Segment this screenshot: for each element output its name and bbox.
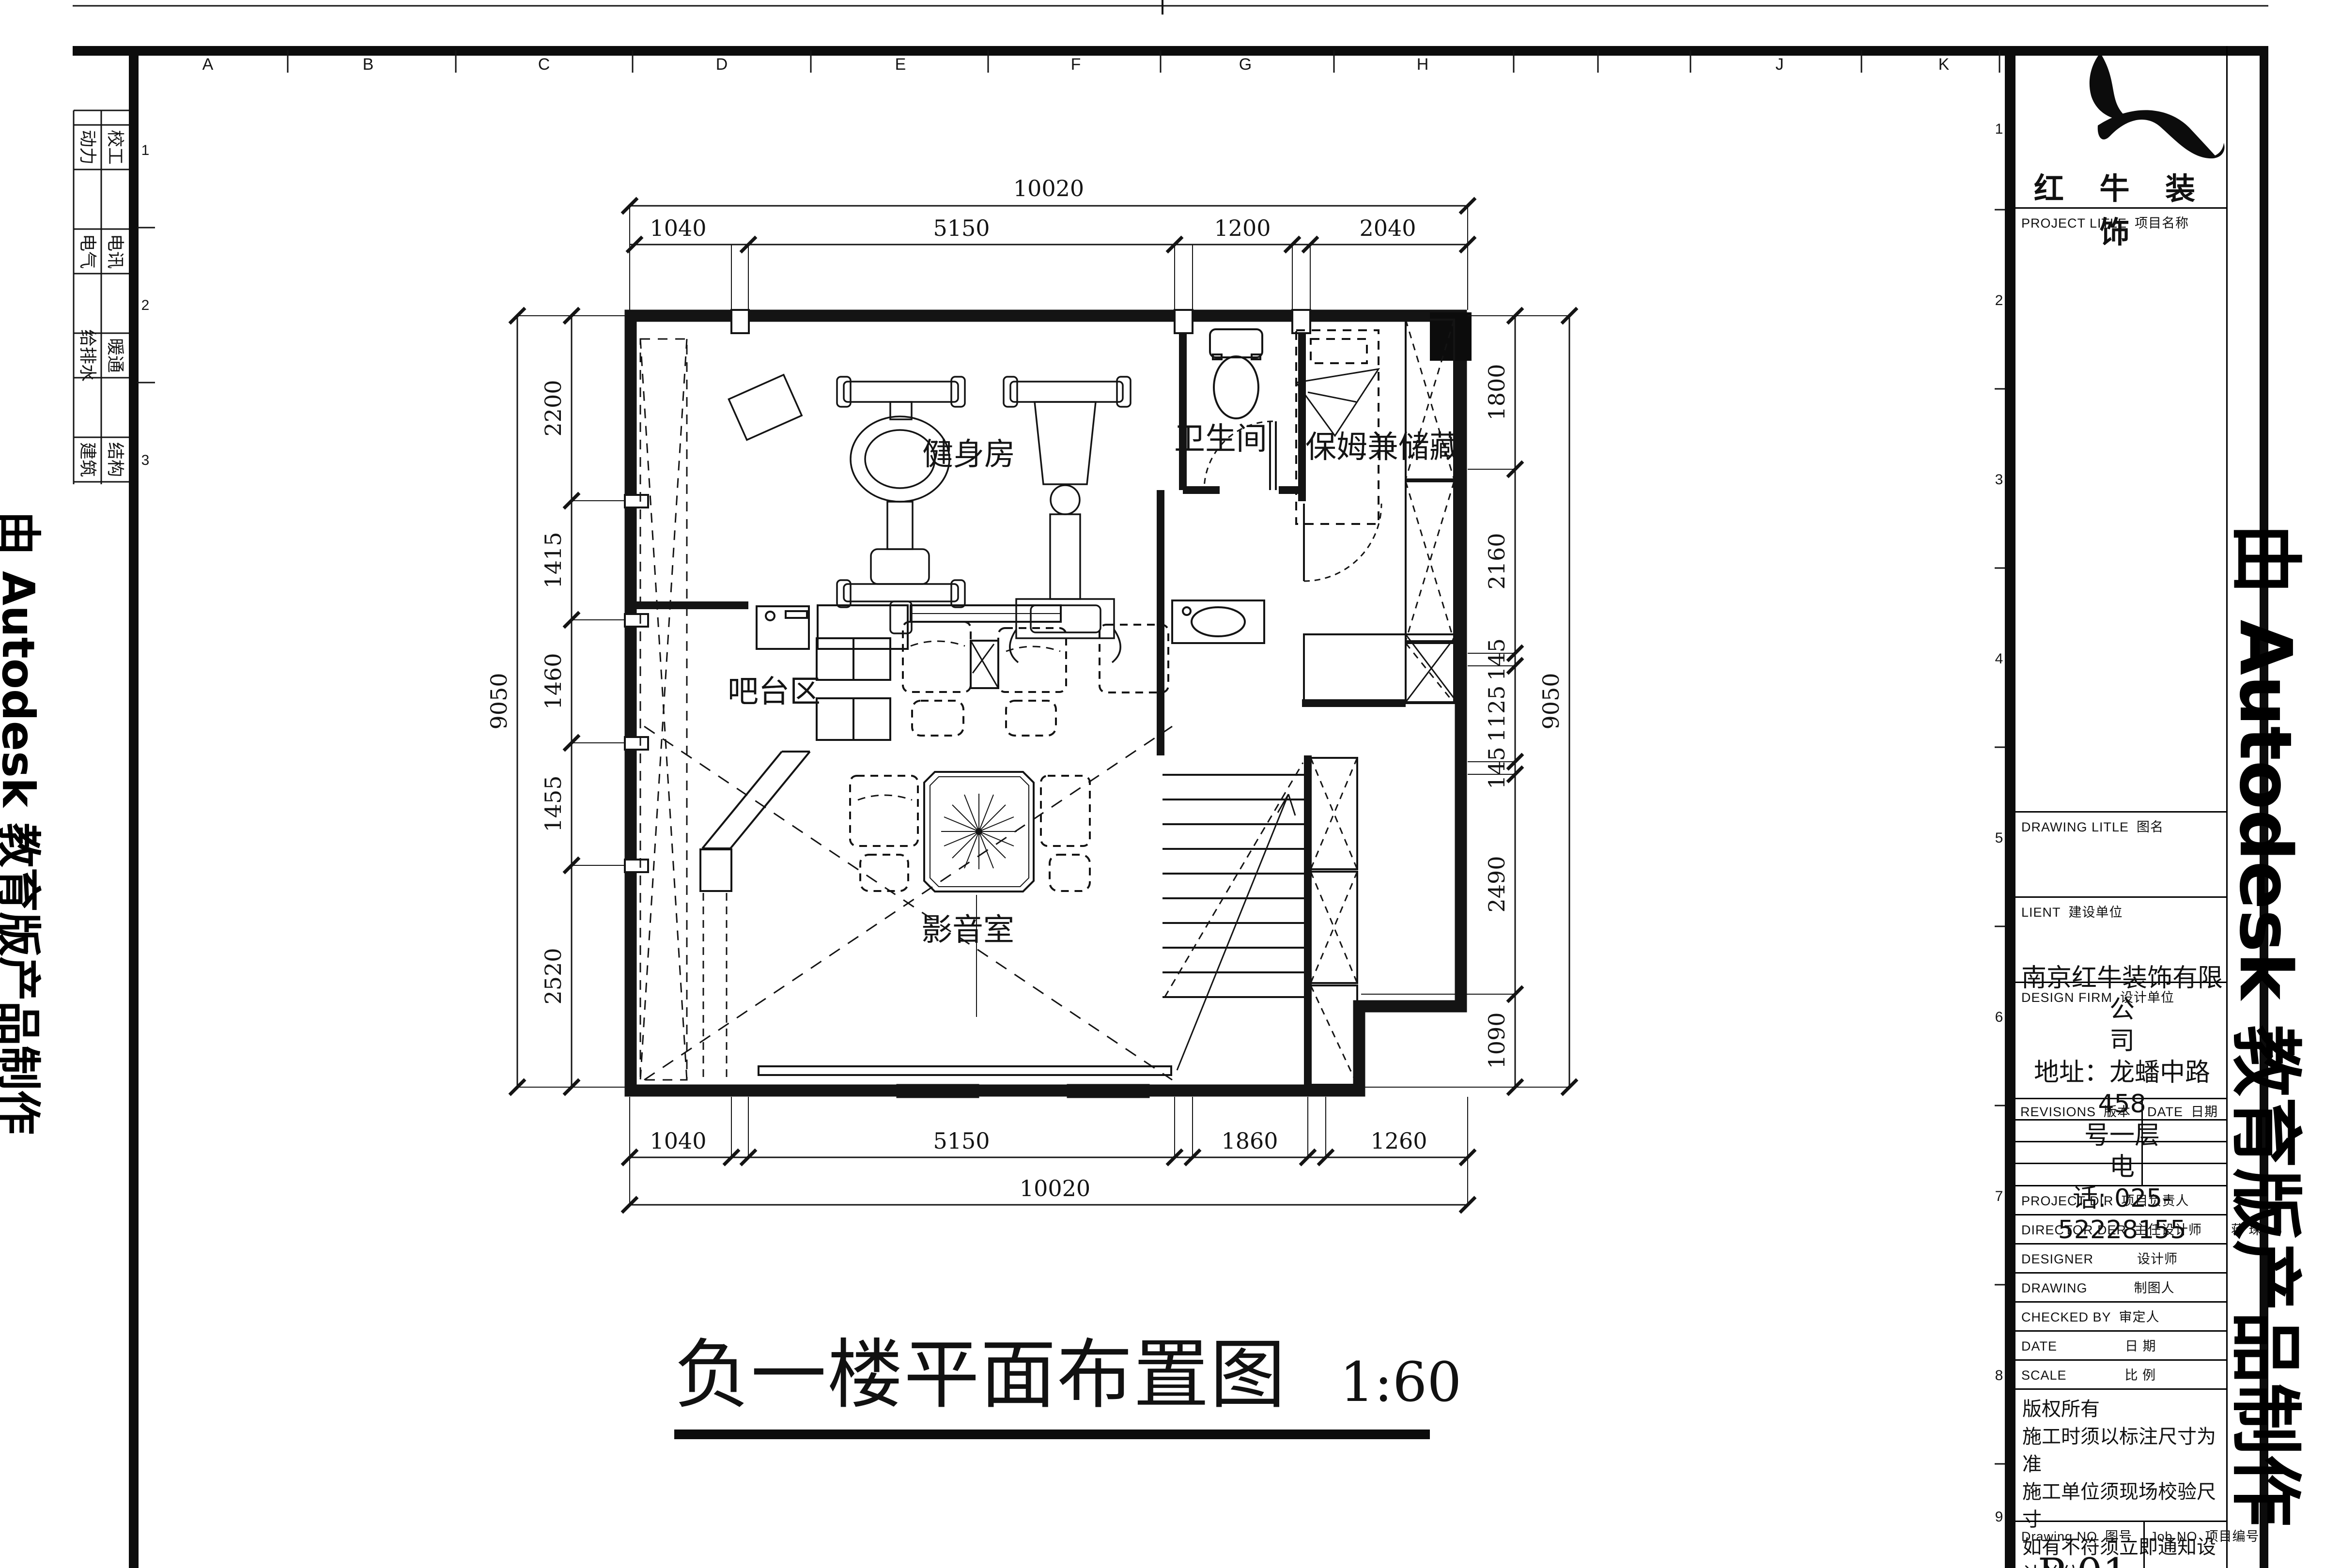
field-label-zh: 制图人 [2134,1281,2175,1295]
field-label-zh: 项目名称 [2135,216,2189,231]
field-drawing: DRAWING制图人 [2015,1272,2226,1301]
room-label-nanny: 保姆兼储藏 [1305,430,1460,465]
flower-centerpiece [941,794,1017,869]
field-label-zh: 审定人 [2119,1310,2160,1324]
field-label-zh: 比 例 [2125,1368,2156,1383]
field-label-zh: 图名 [2137,820,2164,834]
column-letter: B [363,55,374,74]
drawing-title-scale: 1:60 [1340,1351,1462,1414]
logo-cell: 红 牛 装 饰 [2015,46,2226,207]
drawing-title-text: 负一楼平面布置图 [674,1313,1286,1423]
column-letter: J [1776,55,1784,74]
dim-value: 1040 [650,215,706,241]
field-label-en: CHECKED BY [2021,1310,2111,1324]
discipline-label: 暖通 [105,338,125,373]
column-letter: F [1071,55,1081,74]
dim-value: 10020 [1013,175,1084,201]
toilet [1210,329,1262,418]
discipline-label: 电气 [77,234,97,269]
column-letter: D [716,55,728,74]
understair-closet [1311,758,1357,1085]
dim-value: 1455 [540,775,566,832]
row-number: 6 [1995,1009,2003,1025]
dim-value: 2040 [1359,215,1416,241]
company-line: 司 [2011,1026,2233,1057]
field-label-en: LIENT [2021,905,2061,920]
dim-value: 1860 [1221,1128,1278,1154]
field-label-en: PROJECT LITLE [2021,216,2127,231]
field-label-zh: 建设单位 [2069,905,2123,920]
ceiling-projection [644,726,1172,1080]
drawing-no-divider [2143,1521,2145,1568]
dim-value: 9050 [486,673,512,729]
dim-value: 5150 [933,215,990,241]
dim-value: 145 [1484,747,1510,789]
discipline-label: 动力 [77,130,97,165]
row-number: 4 [1995,651,2003,667]
dim-value: 1040 [650,1128,706,1154]
field-drawing-no: Drawing NO图号 P-01 Job NO项目编号 [2015,1521,2226,1568]
stairs [1162,763,1306,1070]
glass-tea-table [971,641,998,688]
rednull-bull-logo [2015,48,2226,159]
dim-bottom-labels: 1040 5150 1860 1260 10020 [650,1128,1427,1201]
gym-machine-right [1004,377,1131,662]
dim-value: 10020 [1020,1175,1090,1201]
row-number: 3 [1995,472,2003,488]
company-line: 电 [2011,1152,2233,1183]
field-checked: CHECKED BY审定人 [2015,1301,2226,1330]
dim-value: 5150 [933,1128,990,1154]
washbasin [1172,600,1264,643]
field-label-zh: 日 期 [2125,1339,2156,1353]
dim-top [622,198,1475,310]
row-number: 1 [141,142,150,158]
drawing-number: P-01 [2038,1550,2220,1568]
field-label-en: Drawing NO [2021,1529,2097,1544]
column-letter: H [1417,55,1429,74]
company-line: 号一层 [2011,1120,2233,1152]
column-letter: K [1938,55,1950,74]
center-table [924,772,1034,892]
exercise-mat [728,375,802,440]
bed [1296,330,1379,524]
field-scale: SCALE比 例 [2015,1359,2226,1388]
row-number: 9 [1995,1509,2003,1525]
dim-value: 2520 [540,948,566,1004]
row-number: 8 [1995,1368,2003,1384]
row-number: 3 [141,452,150,468]
tv-console [911,605,1061,622]
field-label-en: Job NO [2150,1529,2198,1544]
projector-screen [759,1066,1171,1075]
discipline-label: 电讯 [105,234,125,269]
dim-value: 1460 [540,653,566,709]
wardrobe [1406,320,1454,703]
field-drawing-title: DRAWING LITLE图名 [2015,811,2226,896]
row-ruler-left-numbers: 1 2 3 [141,142,150,468]
field-designer: DESIGNER设计师 [2015,1243,2226,1272]
row-number: 2 [141,297,150,313]
company-line: 地址：龙蟠中路458 [2011,1057,2233,1120]
dim-value: 145 [1484,638,1510,681]
dim-value: 2160 [1484,533,1510,589]
bar-tables [817,638,890,740]
row-number: 7 [1995,1188,2003,1204]
field-label-en: DRAWING [2021,1281,2088,1295]
room-label-cinema: 影音室 [921,912,1014,948]
dim-value: 1800 [1484,364,1510,420]
dim-top-labels: 10020 1040 5150 1200 2040 [650,175,1416,241]
room-label-gym: 健身房 [922,437,1015,473]
copyright-notes: 版权所有 施工时须以标注尺寸为准 施工单位须现场校验尺寸 如有不符须立即通知设计… [2015,1388,2226,1521]
company-info: 南京红牛装饰有限公 司 地址：龙蟠中路458 号一层 电 话: 025-5222… [2011,963,2233,1246]
bed-fold [1296,369,1379,436]
field-label-en: DESIGNER [2021,1252,2093,1266]
wall-piers [625,310,1310,872]
column-letter: A [202,55,214,74]
dim-value: 1415 [540,532,566,588]
field-label-zh: 项目编号 [2205,1529,2260,1544]
discipline-strip [74,110,129,484]
discipline-label: 建筑 [77,442,97,477]
dim-left [510,308,625,1095]
note-line: 版权所有 [2022,1396,2219,1423]
field-label-en: DATE [2021,1339,2057,1353]
field-date: DATE日 期 [2015,1330,2226,1359]
column-letter: C [538,55,550,74]
autodesk-watermark-left: 由 Autodesk 教育版产品制作 [0,511,54,1135]
field-label-zh: 图号 [2105,1529,2132,1544]
discipline-label: 结构 [105,442,125,477]
discipline-label: 给排水 [77,329,97,382]
field-label-en: SCALE [2021,1368,2067,1383]
room-label-bath: 卫生间 [1174,421,1267,457]
room-label-bar: 吧台区 [728,674,821,710]
row-number: 2 [1995,292,2003,308]
cabinet-row [1304,634,1457,702]
column-ruler-letters: A B C D E F G H J K [202,55,1950,74]
row-number: 1 [1995,121,2003,137]
note-line: 施工时须以标注尺寸为准 [2022,1423,2219,1478]
row-number: 5 [1995,830,2003,846]
field-label-en: DRAWING LITLE [2021,820,2129,834]
dim-value: 2490 [1484,856,1510,912]
field-label-zh: 设计师 [2137,1252,2178,1266]
paper-edge [73,0,2268,15]
discipline-label: 校工 [105,130,125,165]
sofa-set [850,622,1168,891]
dim-value: 9050 [1538,673,1564,729]
dim-value: 1200 [1214,215,1271,241]
field-project-title: PROJECT LITLE项目名称 [2015,207,2226,811]
drawing-title: 负一楼平面布置图 1:60 [674,1313,1430,1439]
dim-value: 1260 [1370,1128,1427,1154]
gym-machine-left [837,377,965,633]
row-ruler-right-numbers: 1 2 3 4 5 6 7 8 9 [1995,121,2003,1525]
column-letter: G [1239,55,1252,74]
left-wall-cabinet [640,339,687,1080]
column-letter: E [895,55,906,74]
nanny-door [1304,504,1381,581]
dim-value: 1090 [1484,1012,1510,1069]
dim-value: 2200 [540,380,566,436]
company-line: 话: 025-52228155 [2011,1183,2233,1246]
dim-value: 1125 [1484,685,1510,742]
dim-left-labels: 9050 2200 1415 1460 1455 2520 [486,380,566,1004]
autodesk-watermark-right: 由 Autodesk 教育版产品制作 [2220,523,2324,1526]
company-line: 南京红牛装饰有限公 [2011,963,2233,1026]
